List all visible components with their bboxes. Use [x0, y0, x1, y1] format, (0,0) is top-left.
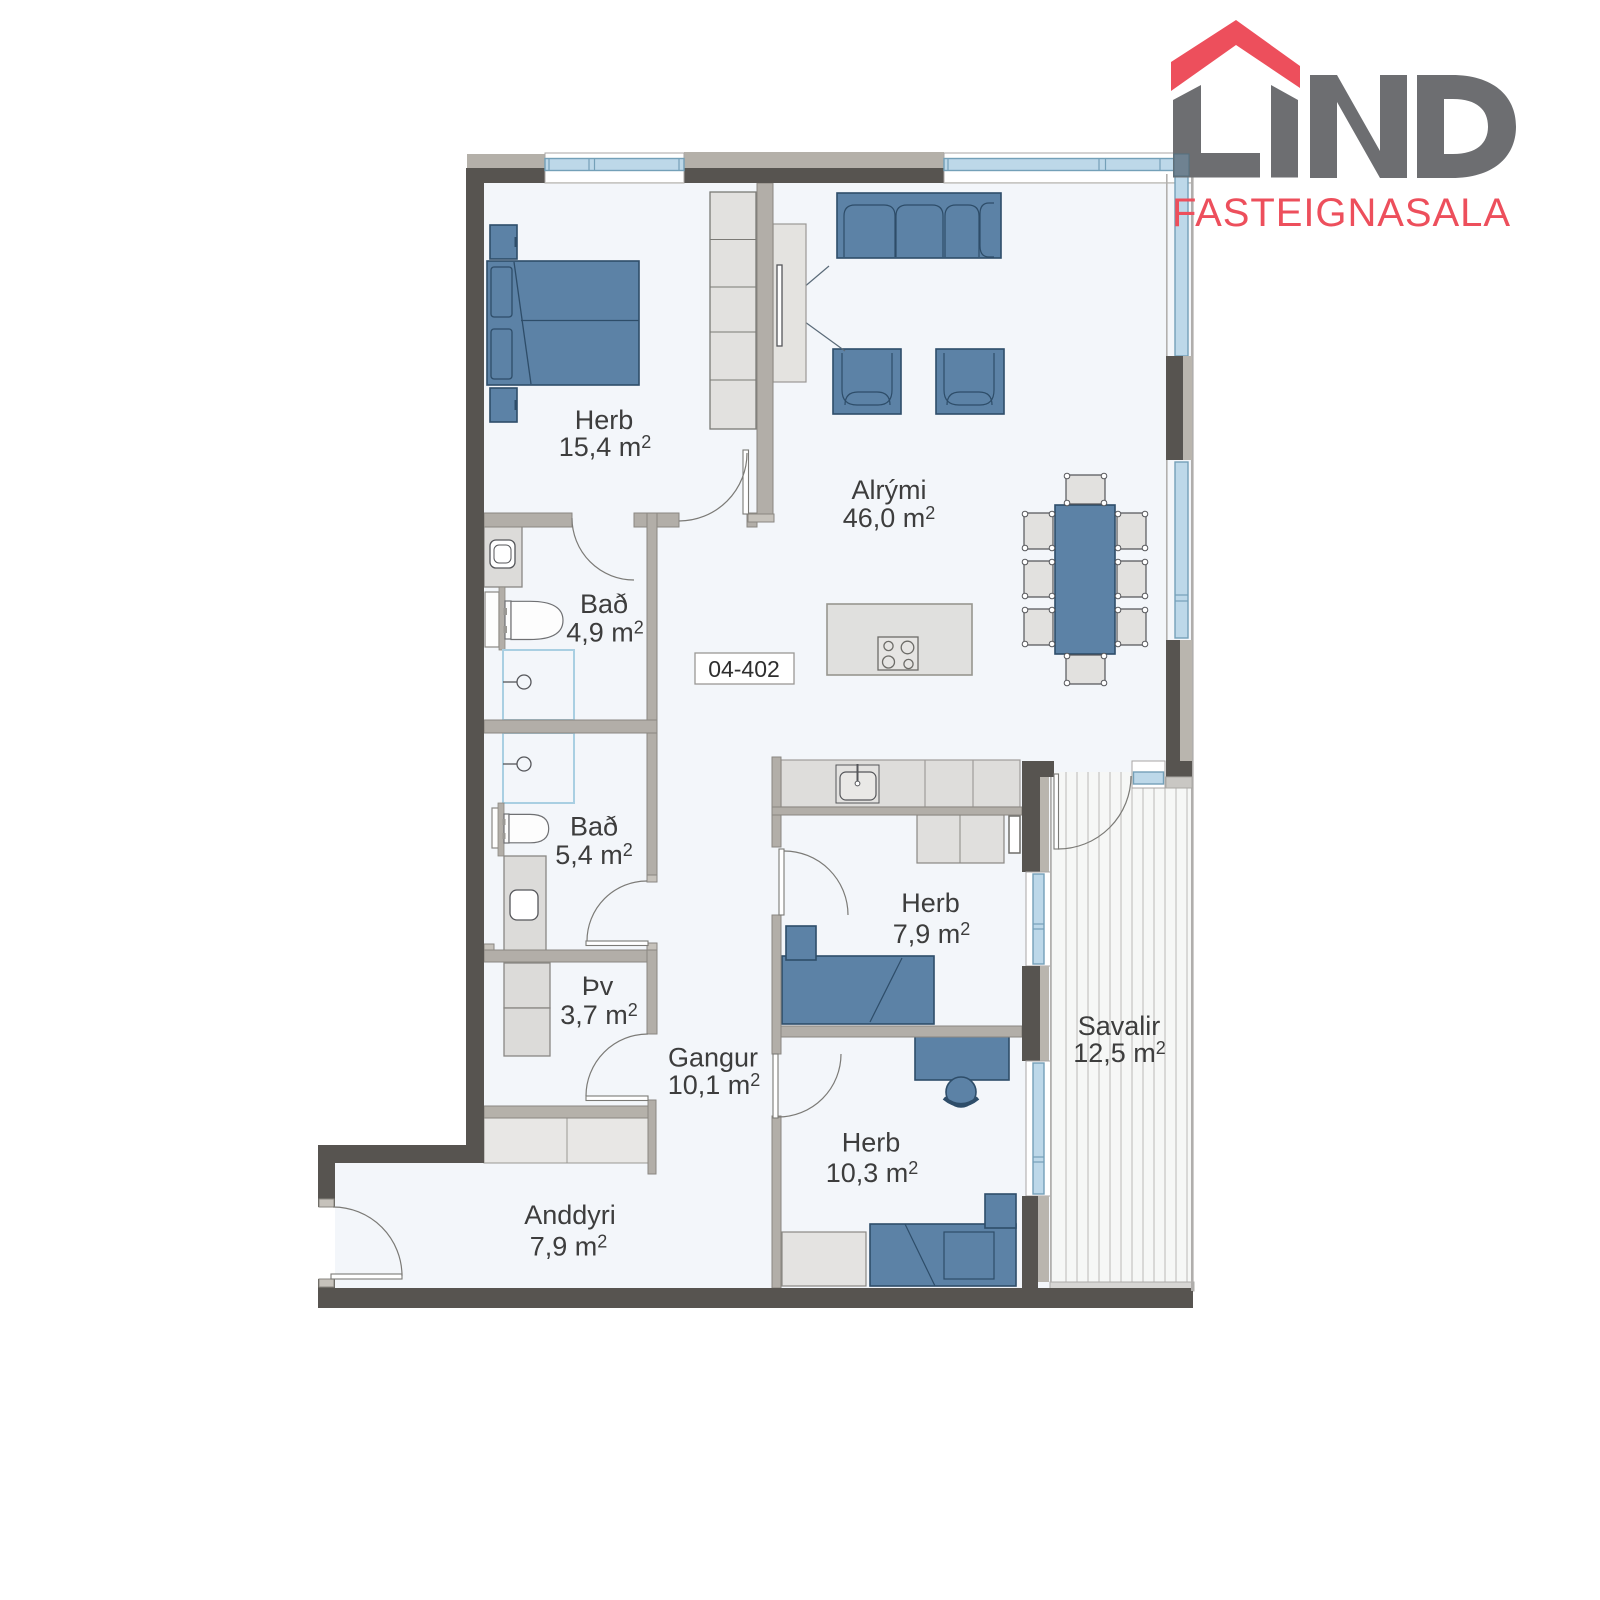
svg-text:Herb: Herb [575, 405, 634, 435]
svg-text:4,9 m2: 4,9 m2 [566, 618, 644, 648]
svg-text:10,3 m2: 10,3 m2 [826, 1158, 919, 1188]
svg-text:3,7 m2: 3,7 m2 [560, 1000, 638, 1030]
svg-text:Alrými: Alrými [852, 475, 927, 505]
svg-text:Savalir: Savalir [1078, 1011, 1161, 1041]
svg-text:5,4 m2: 5,4 m2 [555, 840, 633, 870]
svg-text:Gangur: Gangur [668, 1043, 758, 1073]
svg-text:Herb: Herb [842, 1128, 901, 1158]
svg-text:Bað: Bað [570, 812, 618, 842]
svg-text:7,9 m2: 7,9 m2 [530, 1232, 608, 1262]
svg-text:Þv: Þv [582, 971, 614, 1001]
svg-text:7,9 m2: 7,9 m2 [893, 919, 971, 949]
svg-text:10,1 m2: 10,1 m2 [668, 1070, 761, 1100]
svg-text:Bað: Bað [580, 589, 628, 619]
svg-text:FASTEIGNASALA: FASTEIGNASALA [1172, 191, 1510, 235]
svg-text:12,5 m2: 12,5 m2 [1073, 1038, 1166, 1068]
svg-text:15,4 m2: 15,4 m2 [559, 432, 652, 462]
svg-text:Anddyri: Anddyri [524, 1200, 616, 1230]
svg-text:Herb: Herb [901, 888, 960, 918]
svg-text:04-402: 04-402 [708, 656, 780, 682]
svg-text:46,0 m2: 46,0 m2 [843, 503, 936, 533]
